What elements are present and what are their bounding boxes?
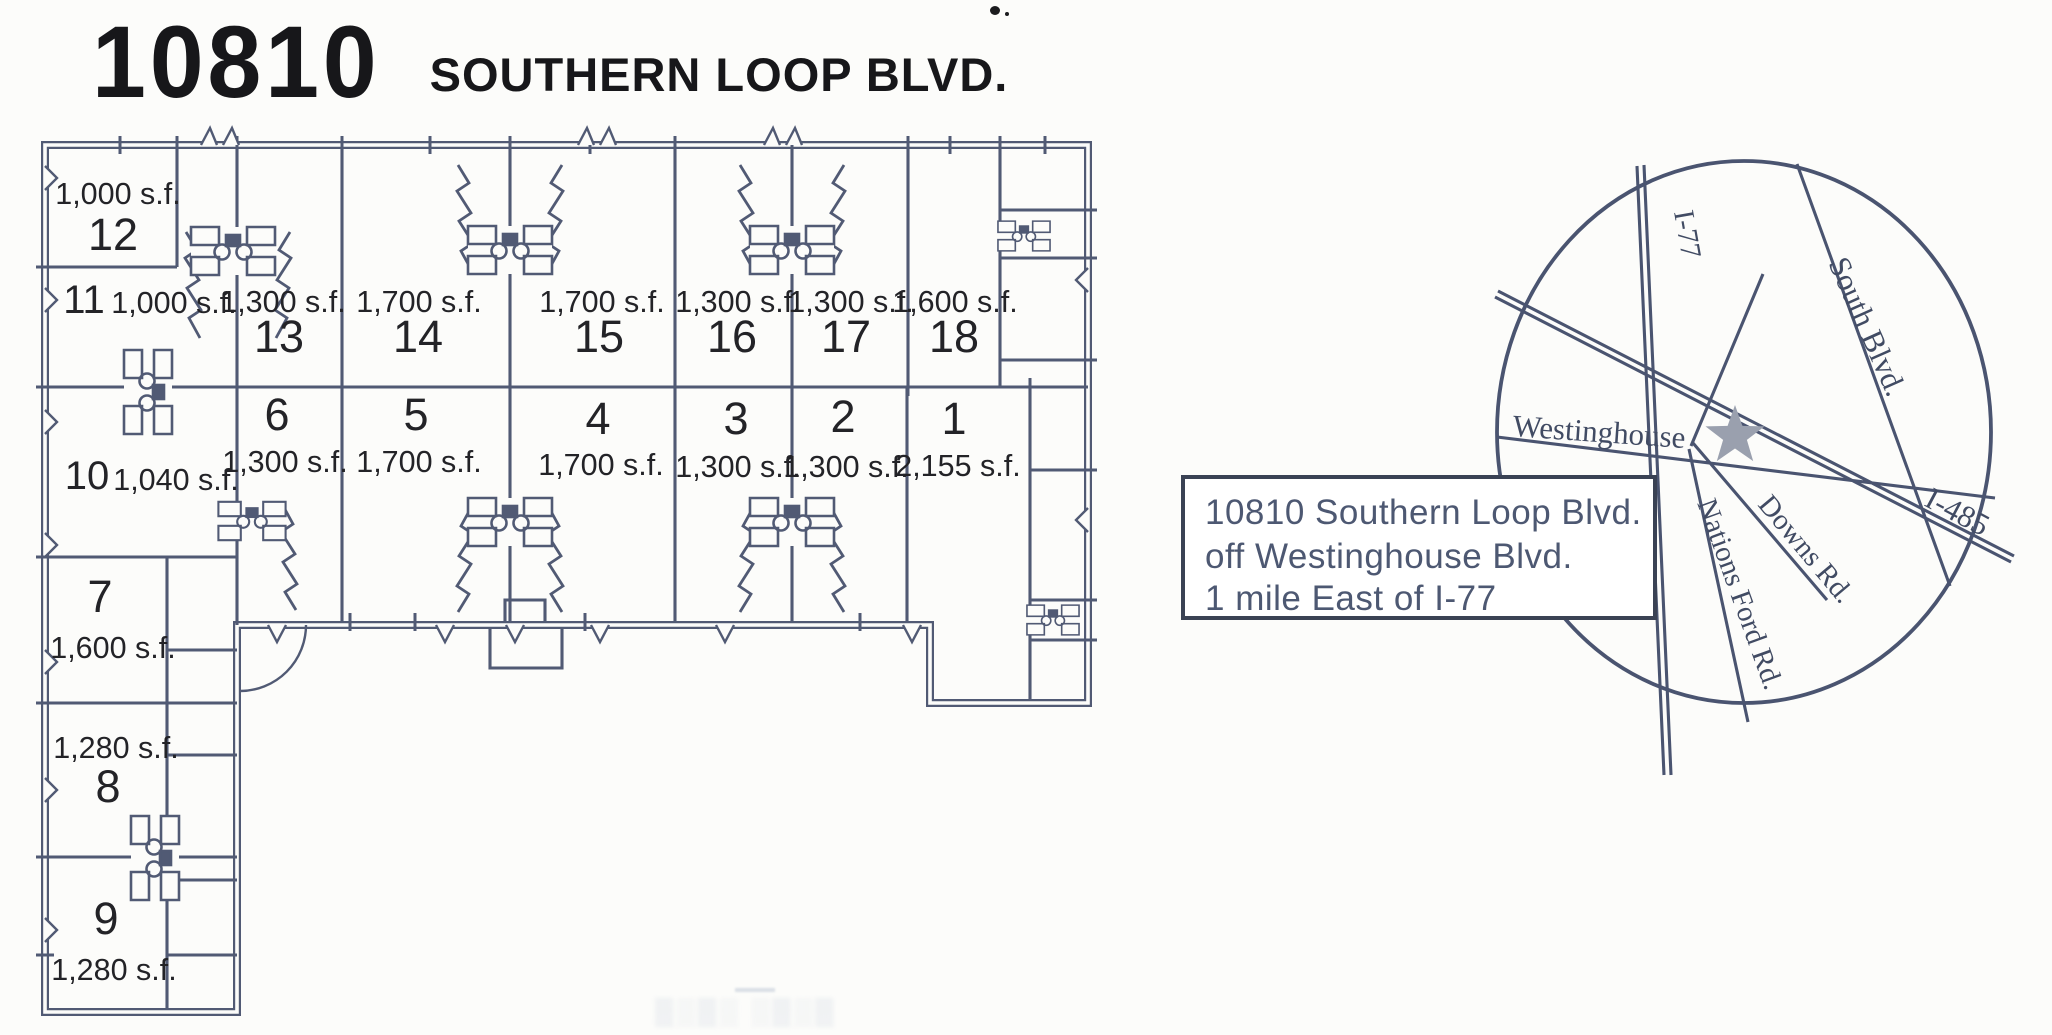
unit-9-sf: 1,280 s.f. <box>51 953 176 987</box>
unit-18-number: 18 <box>929 311 979 362</box>
ink-speck <box>990 6 1000 15</box>
unit-10-number: 10 <box>65 454 110 498</box>
unit-8-number: 8 <box>95 761 120 812</box>
unit-label-12: 1,000 s.f. 12 <box>55 177 180 260</box>
unit-label-2: 2 1,300 s.f. <box>783 391 908 484</box>
bleed-through-smudge: ▒░▒░ ░▒░▒ <box>655 1003 885 1029</box>
callout-line-3: 1 mile East of I-77 <box>1205 579 1497 618</box>
location-star-icon <box>1706 405 1765 461</box>
unit-17-number: 17 <box>821 311 871 362</box>
unit-12-sf: 1,000 s.f. <box>55 177 180 211</box>
unit-label-16: 1,300 s.f. 16 <box>675 285 800 362</box>
unit-1-number: 1 <box>941 393 966 444</box>
flyer-page: 10810 SOUTHERN LOOP BLVD. <box>0 0 2052 1035</box>
callout-line-1: 10810 Southern Loop Blvd. <box>1205 493 1642 532</box>
flyer-drawing: 1,000 s.f. 12 11 1,000 s.f. 1,300 s.f. 1… <box>0 0 2052 1035</box>
bleed-through-mark <box>735 988 775 992</box>
unit-label-7: 7 1,600 s.f. <box>50 571 175 665</box>
unit-label-10: 10 1,040 s.f. <box>65 454 239 498</box>
unit-labels: 1,000 s.f. 12 11 1,000 s.f. 1,300 s.f. 1… <box>50 177 1020 987</box>
unit-4-sf: 1,700 s.f. <box>538 448 663 482</box>
unit-6-number: 6 <box>264 389 289 440</box>
unit-15-number: 15 <box>574 311 624 362</box>
floor-plan: 1,000 s.f. 12 11 1,000 s.f. 1,300 s.f. 1… <box>36 128 1097 1012</box>
unit-14-number: 14 <box>393 311 443 362</box>
unit-7-number: 7 <box>87 571 112 622</box>
unit-8-sf: 1,280 s.f. <box>53 731 178 765</box>
unit-label-5: 5 1,700 s.f. <box>356 389 481 479</box>
unit-3-number: 3 <box>723 393 748 444</box>
unit-9-number: 9 <box>93 893 118 944</box>
road-label-downs-rd: Downs Rd. <box>1752 489 1860 610</box>
address-callout: 10810 Southern Loop Blvd. off Westinghou… <box>1183 477 1655 618</box>
unit-2-number: 2 <box>830 391 855 442</box>
unit-label-15: 1,700 s.f. 15 <box>539 285 664 362</box>
unit-1-sf: 2,155 s.f. <box>895 449 1020 483</box>
unit-label-3: 3 1,300 s.f. <box>675 393 800 484</box>
road-label-westinghouse: Westinghouse <box>1512 408 1687 455</box>
unit-label-14: 1,700 s.f. 14 <box>356 285 481 362</box>
unit-12-number: 12 <box>88 209 138 260</box>
unit-5-sf: 1,700 s.f. <box>356 445 481 479</box>
unit-label-9: 9 1,280 s.f. <box>51 893 176 987</box>
unit-2-sf: 1,300 s.f. <box>783 450 908 484</box>
callout-line-2: off Westinghouse Blvd. <box>1205 537 1573 576</box>
unit-label-6: 6 1,300 s.f. <box>222 389 347 479</box>
unit-6-sf: 1,300 s.f. <box>222 445 347 479</box>
road-label-south-blvd: South Blvd. <box>1822 252 1914 402</box>
location-map: I-77 South Blvd. Westinghouse I-485 Down… <box>1183 161 2014 775</box>
unit-label-1: 1 2,155 s.f. <box>895 393 1020 483</box>
unit-7-sf: 1,600 s.f. <box>50 631 175 665</box>
unit-11-number: 11 <box>63 278 105 322</box>
map-roads <box>1495 164 2014 775</box>
unit-label-8: 1,280 s.f. 8 <box>53 731 178 812</box>
unit-label-4: 4 1,700 s.f. <box>538 393 663 482</box>
road-label-i77: I-77 <box>1667 208 1707 261</box>
building-interior-walls <box>45 148 1088 1009</box>
unit-label-11: 11 1,000 s.f. <box>63 278 237 322</box>
unit-10-sf: 1,040 s.f. <box>113 463 238 497</box>
unit-11-sf: 1,000 s.f. <box>111 286 236 320</box>
unit-5-number: 5 <box>403 389 428 440</box>
unit-label-13: 1,300 s.f. 13 <box>220 285 345 362</box>
ink-speck <box>1005 12 1009 16</box>
unit-4-number: 4 <box>585 393 610 444</box>
unit-13-number: 13 <box>254 311 304 362</box>
unit-16-number: 16 <box>707 311 757 362</box>
unit-3-sf: 1,300 s.f. <box>675 450 800 484</box>
